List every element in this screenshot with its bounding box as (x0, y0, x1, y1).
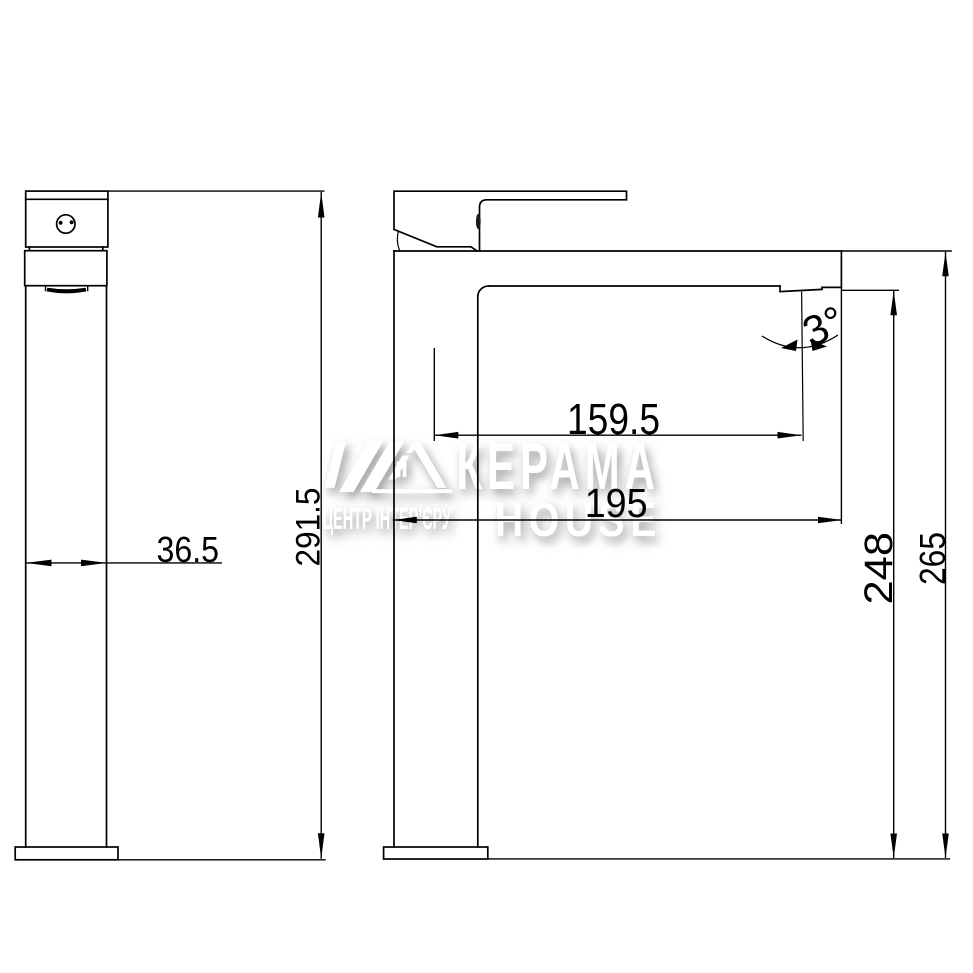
svg-text:248: 248 (857, 532, 901, 605)
svg-text:291.5: 291.5 (290, 488, 328, 567)
svg-text:36.5: 36.5 (157, 529, 220, 570)
svg-text:3°: 3° (796, 296, 852, 355)
svg-text:195: 195 (585, 480, 648, 526)
svg-text:ЦЕНТР ІНТЕР’ЄРУ: ЦЕНТР ІНТЕР’ЄРУ (323, 502, 452, 536)
svg-text:265: 265 (912, 532, 953, 585)
svg-text:159.5: 159.5 (567, 396, 660, 444)
